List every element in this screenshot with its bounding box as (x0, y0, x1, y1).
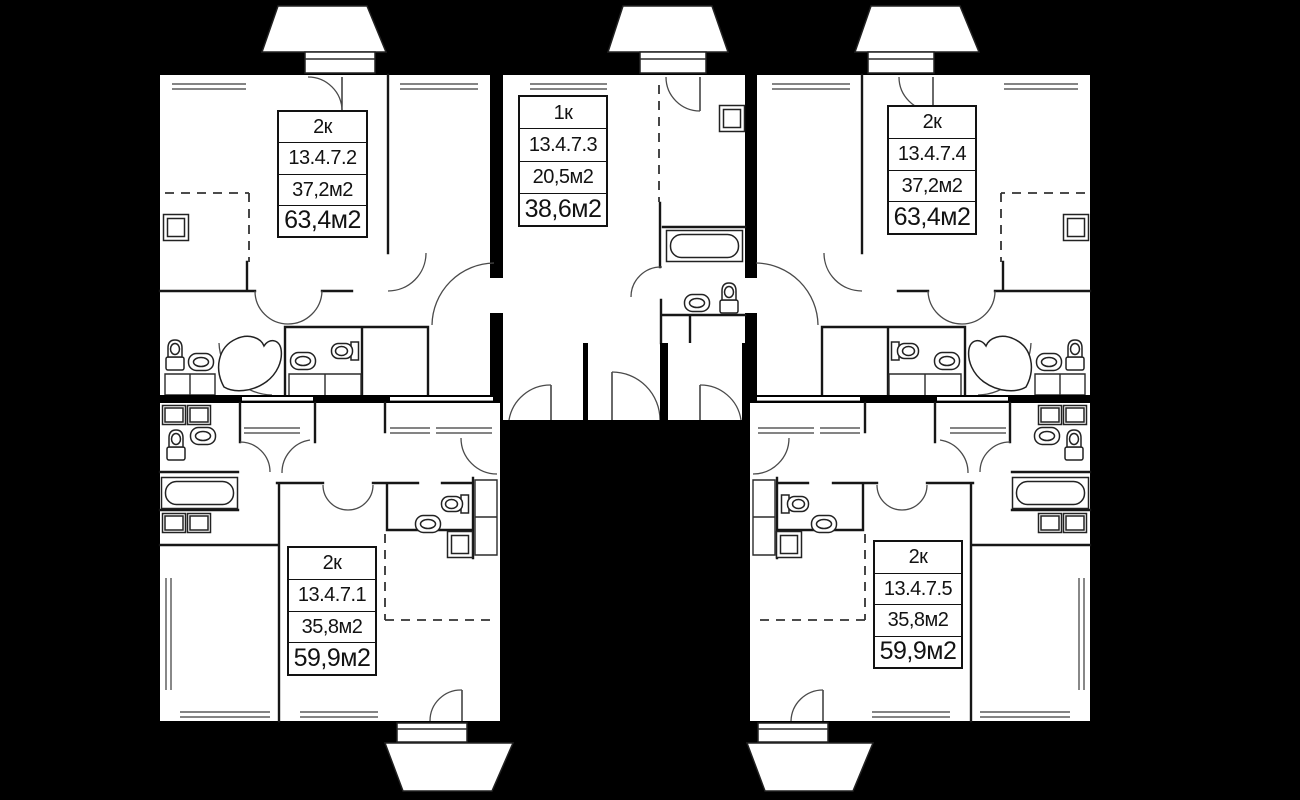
unit-living-area: 35,8м2 (289, 611, 375, 643)
sink (191, 428, 216, 445)
unit-total-area: 38,6м2 (520, 193, 606, 225)
bathtub (162, 478, 238, 509)
unit-living-area: 35,8м2 (875, 604, 961, 636)
unit-label-box: 2к 13.4.7.2 37,2м2 63,4м2 (277, 110, 368, 238)
unit-type: 2к (889, 107, 975, 138)
bathtub (667, 231, 743, 262)
unit-total-area: 63,4м2 (279, 205, 366, 236)
vent-shaft (164, 215, 189, 241)
unit-label-box: 1к 13.4.7.3 20,5м2 38,6м2 (518, 95, 608, 227)
unit-label-box: 2к 13.4.7.4 37,2м2 63,4м2 (887, 105, 977, 235)
vent-shaft (720, 106, 745, 132)
sink (416, 516, 441, 533)
unit-number: 13.4.7.2 (279, 142, 366, 173)
unit-living-area: 20,5м2 (520, 161, 606, 193)
sink (1037, 354, 1062, 371)
washing-machine (1039, 514, 1062, 533)
unit-type: 2к (279, 112, 366, 142)
toilet (167, 430, 185, 460)
vent-shaft (448, 532, 473, 558)
unit-label-box: 2к 13.4.7.5 35,8м2 59,9м2 (873, 540, 963, 669)
sink (935, 353, 960, 370)
washing-machine (1064, 406, 1087, 425)
vent-shaft (1064, 215, 1089, 241)
vent-shaft (777, 532, 802, 558)
unit-number: 13.4.7.1 (289, 579, 375, 611)
unit-number: 13.4.7.3 (520, 128, 606, 160)
floor-plan-canvas: 2к 13.4.7.2 37,2м2 63,4м2 1к 13.4.7.3 20… (0, 0, 1300, 800)
washing-machine (163, 514, 186, 533)
unit-number: 13.4.7.4 (889, 138, 975, 170)
unit-total-area: 59,9м2 (289, 642, 375, 674)
unit-total-area: 59,9м2 (875, 636, 961, 668)
toilet (1065, 430, 1083, 460)
washing-machine (163, 406, 186, 425)
wall-toilet (782, 495, 809, 513)
washing-machine (1064, 514, 1087, 533)
toilet (166, 340, 184, 370)
unit-living-area: 37,2м2 (889, 170, 975, 202)
balcony-bottom-2 (747, 723, 873, 791)
unit-total-area: 63,4м2 (889, 201, 975, 233)
unit-type: 1к (520, 97, 606, 128)
sink (685, 295, 710, 312)
floor-plan-drawing (0, 0, 1300, 800)
unit-number: 13.4.7.5 (875, 573, 961, 605)
unit-type: 2к (289, 548, 375, 579)
bathtub (1013, 478, 1089, 509)
door-opening (490, 278, 503, 313)
sink (291, 353, 316, 370)
door-opening (744, 278, 757, 313)
sink (1035, 428, 1060, 445)
wall-toilet (332, 342, 359, 360)
washing-machine (1039, 406, 1062, 425)
toilet (720, 283, 738, 313)
sink (189, 354, 214, 371)
toilet (1066, 340, 1084, 370)
wall-toilet (442, 495, 469, 513)
washing-machine (188, 514, 211, 533)
wall-toilet (892, 342, 919, 360)
sink (812, 516, 837, 533)
unit-label-box: 2к 13.4.7.1 35,8м2 59,9м2 (287, 546, 377, 676)
balcony-bottom-1 (385, 723, 513, 791)
unit-type: 2к (875, 542, 961, 573)
unit-living-area: 37,2м2 (279, 174, 366, 205)
washing-machine (188, 406, 211, 425)
